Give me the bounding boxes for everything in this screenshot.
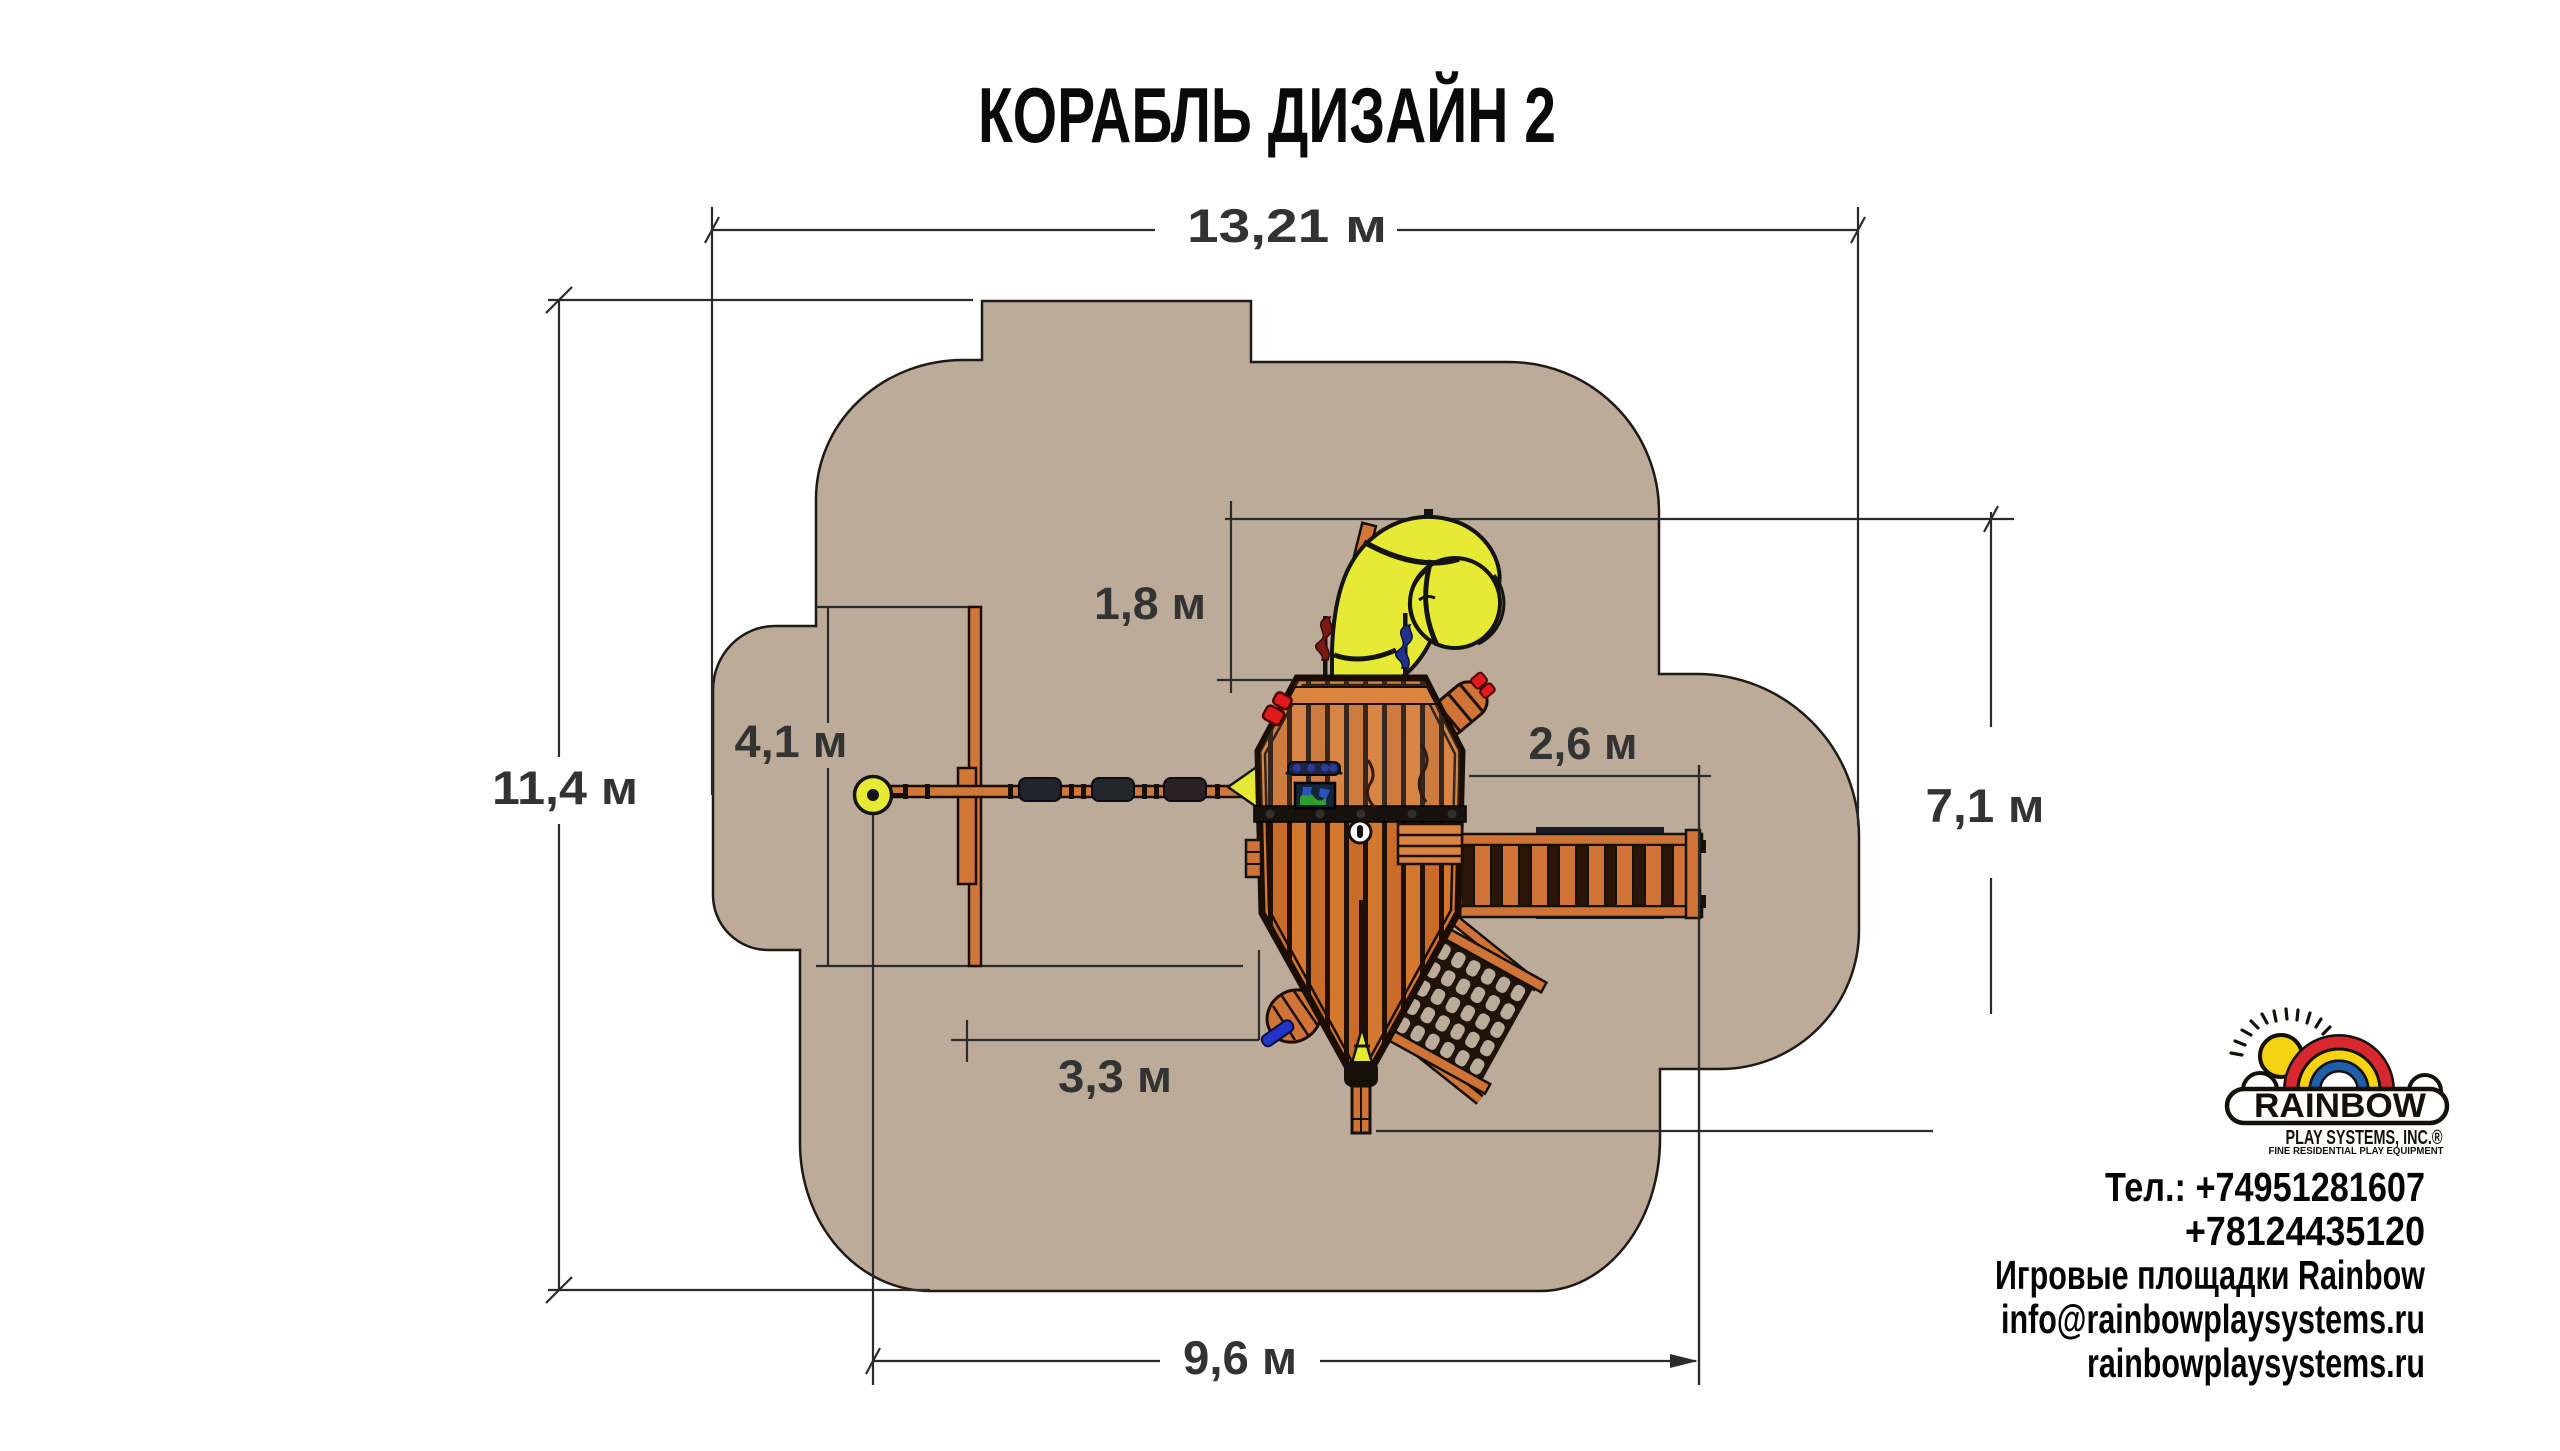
svg-text:RAINBOW: RAINBOW [2254,1087,2427,1125]
svg-text:Игровые площадки Rainbow: Игровые площадки Rainbow [1995,1252,2425,1298]
svg-text:11,4 м: 11,4 м [492,761,638,814]
svg-text:2,6 м: 2,6 м [1529,718,1638,769]
svg-text:7,1 м: 7,1 м [1926,779,2045,832]
svg-text:1,8 м: 1,8 м [1094,578,1206,629]
svg-text:13,21 м: 13,21 м [1187,199,1387,252]
svg-text:FINE RESIDENTIAL PLAY EQUIPMEN: FINE RESIDENTIAL PLAY EQUIPMENT [2269,1145,2445,1157]
svg-text:Тел.: +74951281607: Тел.: +74951281607 [2105,1164,2425,1210]
svg-text:4,1 м: 4,1 м [735,716,848,767]
svg-text:9,6 м: 9,6 м [1183,1331,1297,1384]
svg-text:3,3 м: 3,3 м [1058,1051,1172,1102]
svg-text:КОРАБЛЬ ДИЗАЙН 2: КОРАБЛЬ ДИЗАЙН 2 [978,71,1556,159]
svg-text:rainbowplaysystems.ru: rainbowplaysystems.ru [2087,1340,2425,1386]
svg-text:info@rainbowplaysystems.ru: info@rainbowplaysystems.ru [2001,1296,2425,1342]
svg-text:+78124435120: +78124435120 [2185,1208,2425,1254]
